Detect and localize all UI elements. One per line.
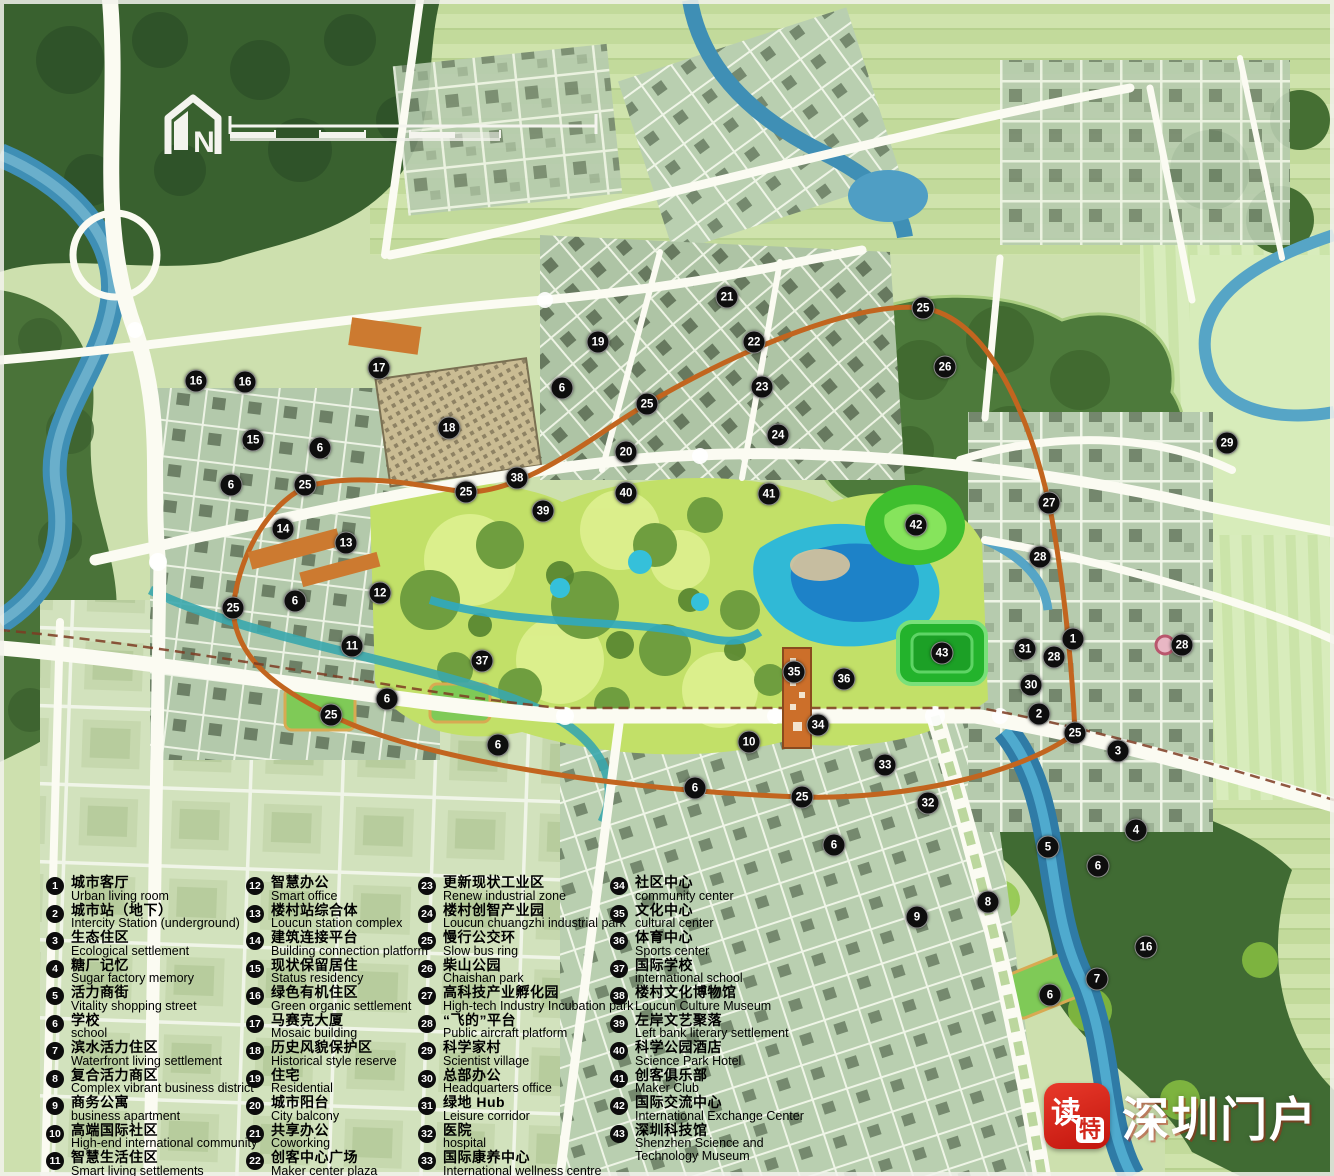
legend-label-en: High-tech Industry Incubation park [443,1000,638,1013]
legend-item-16: 16绿色有机住区Green organic settlement [246,986,426,1013]
map-marker-24: 24 [767,424,790,447]
legend-label-en: Loucun Culture Museum [635,1000,825,1013]
legend-label-en: Vitality shopping street [71,1000,246,1013]
legend-label-cn: 城市站（地下） [71,904,246,918]
legend-item-19: 19住宅Residential [246,1069,426,1096]
legend-number-badge: 29 [418,1042,436,1060]
legend-item-35: 35文化中心cultural center [610,904,825,931]
legend-label-cn: 体育中心 [635,931,825,945]
legend-item-3: 3生态住区Ecological settlement [46,931,246,958]
legend-item-26: 26柴山公园Chaishan park [418,959,638,986]
legend-number-badge: 12 [246,877,264,895]
legend-number-badge: 39 [610,1015,628,1033]
legend-label-en: International Exchange Center [635,1110,825,1123]
legend-label-en: Smart living settlements [71,1165,246,1176]
legend-item-29: 29科学家村Scientist village [418,1041,638,1068]
legend-item-21: 21共享办公Coworking [246,1124,426,1151]
map-marker-16: 16 [185,370,208,393]
legend-item-38: 38楼村文化博物馆Loucun Culture Museum [610,986,825,1013]
map-marker-10: 10 [738,731,761,754]
map-marker-34: 34 [807,714,830,737]
map-marker-25: 25 [455,481,478,504]
map-marker-2: 2 [1028,703,1051,726]
map-marker-25: 25 [293,474,316,497]
map-marker-3: 3 [1107,740,1130,763]
map-marker-42: 42 [905,514,928,537]
legend-label-cn: 共享办公 [271,1124,426,1138]
map-marker-39: 39 [532,500,555,523]
map-marker-25: 25 [636,393,659,416]
legend-item-31: 31绿地 HubLeisure corridor [418,1096,638,1123]
legend-item-22: 22创客中心广场Maker center plaza [246,1151,426,1176]
legend-item-7: 7滨水活力住区Waterfront living settlement [46,1041,246,1068]
legend-number-badge: 7 [46,1042,64,1060]
legend-label-en: community center [635,890,825,903]
legend-label-cn: 总部办公 [443,1069,638,1083]
map-marker-17: 17 [368,357,391,380]
legend-number-badge: 31 [418,1097,436,1115]
map-marker-25: 25 [912,297,935,320]
dute-app-icon: 读 特 [1044,1083,1110,1149]
legend-label-cn: 创客中心广场 [271,1151,426,1165]
legend-item-43: 43深圳科技馆Shenzhen Science andTechnology Mu… [610,1124,825,1164]
legend-item-9: 9商务公寓business apartment [46,1096,246,1123]
legend-label-cn: 智慧生活住区 [71,1151,246,1165]
legend-item-4: 4糖厂记忆Sugar factory memory [46,959,246,986]
map-marker-22: 22 [743,331,766,354]
legend-number-badge: 35 [610,905,628,923]
legend-label-cn: 楼村站综合体 [271,904,426,918]
map-marker-11: 11 [341,635,364,658]
map-marker-5: 5 [1037,836,1060,859]
legend-item-24: 24楼村创智产业园Loucun chuangzhi industrial par… [418,904,638,931]
legend-label-cn: 国际学校 [635,959,825,973]
legend-item-25: 25慢行公交环Slow bus ring [418,931,638,958]
legend-item-23: 23更新现状工业区Renew industrial zone [418,876,638,903]
map-marker-28: 28 [1043,646,1066,669]
legend-number-badge: 9 [46,1097,64,1115]
legend-label-cn: 楼村文化博物馆 [635,986,825,1000]
map-marker-28: 28 [1029,546,1052,569]
legend-label-cn: 文化中心 [635,904,825,918]
legend-item-39: 39左岸文艺聚落Left bank literary settlement [610,1014,825,1041]
legend-number-badge: 15 [246,960,264,978]
legend-item-36: 36体育中心Sports center [610,931,825,958]
legend-number-badge: 40 [610,1042,628,1060]
legend-number-badge: 14 [246,932,264,950]
legend-label-cn: 深圳科技馆 [635,1124,825,1138]
legend-number-badge: 21 [246,1125,264,1143]
legend-item-30: 30总部办公Headquarters office [418,1069,638,1096]
map-marker-38: 38 [506,467,529,490]
legend-label-en-line2: Technology Museum [635,1150,825,1163]
legend-item-17: 17马赛克大厦Mosaic building [246,1014,426,1041]
legend-item-2: 2城市站（地下）Intercity Station (underground) [46,904,246,931]
legend-item-18: 18历史风貌保护区Historical style reserve [246,1041,426,1068]
legend-number-badge: 2 [46,905,64,923]
legend-number-badge: 13 [246,905,264,923]
legend-number-badge: 33 [418,1152,436,1170]
map-marker-30: 30 [1020,674,1043,697]
map-marker-6: 6 [309,437,332,460]
legend-label-cn: 学校 [71,1014,246,1028]
legend-label-en: Historical style reserve [271,1055,426,1068]
legend-label-cn: 绿地 Hub [443,1096,638,1110]
map-marker-28: 28 [1171,634,1194,657]
legend-number-badge: 11 [46,1152,64,1170]
legend-label-en: Ecological settlement [71,945,246,958]
legend-label-cn: 国际康养中心 [443,1151,638,1165]
legend-number-badge: 6 [46,1015,64,1033]
map-marker-1: 1 [1062,628,1085,651]
legend-number-badge: 32 [418,1125,436,1143]
map-marker-13: 13 [335,532,358,555]
map-marker-6: 6 [823,834,846,857]
watermark-char-te: 特 [1076,1117,1104,1143]
legend-label-cn: 高端国际社区 [71,1124,246,1138]
legend-number-badge: 43 [610,1125,628,1143]
map-marker-31: 31 [1013,638,1036,661]
legend-item-32: 32医院hospital [418,1124,638,1151]
legend-number-badge: 28 [418,1015,436,1033]
map-marker-18: 18 [438,417,461,440]
legend-item-8: 8复合活力商区Complex vibrant business district [46,1069,246,1096]
map-marker-25: 25 [320,704,343,727]
map-marker-21: 21 [716,286,739,309]
legend-item-5: 5活力商街Vitality shopping street [46,986,246,1013]
legend-number-badge: 37 [610,960,628,978]
legend-number-badge: 23 [418,877,436,895]
legend-label-cn: 现状保留居住 [271,959,426,973]
legend-number-badge: 34 [610,877,628,895]
legend-label-en: Scientist village [443,1055,638,1068]
legend-item-28: 28“飞的”平台Public aircraft platform [418,1014,638,1041]
legend-label-cn: 创客俱乐部 [635,1069,825,1083]
legend-item-40: 40科学公园酒店Science Park Hotel [610,1041,825,1068]
map-marker-6: 6 [487,734,510,757]
legend-label-cn: 智慧办公 [271,876,426,890]
legend-label-cn: 建筑连接平台 [271,931,426,945]
legend-number-badge: 1 [46,877,64,895]
map-marker-6: 6 [684,777,707,800]
legend-label-cn: 生态住区 [71,931,246,945]
map-marker-29: 29 [1216,432,1239,455]
legend-label-en: Urban living room [71,890,246,903]
legend-label-en: Renew industrial zone [443,890,638,903]
legend-label-en: Green organic settlement [271,1000,426,1013]
map-marker-27: 27 [1038,492,1061,515]
map-marker-6: 6 [220,474,243,497]
legend-item-10: 10高端国际社区High-end international community [46,1124,246,1151]
map-marker-4: 4 [1125,819,1148,842]
legend-column-3: 23更新现状工业区Renew industrial zone24楼村创智产业园L… [418,876,638,1176]
legend-label-cn: 商务公寓 [71,1096,246,1110]
legend-item-34: 34社区中心community center [610,876,825,903]
legend-label-cn: 楼村创智产业园 [443,904,638,918]
legend-number-badge: 41 [610,1070,628,1088]
legend-label-cn: “飞的”平台 [443,1014,638,1028]
legend-label-en: Building connection platform [271,945,426,958]
legend-number-badge: 42 [610,1097,628,1115]
legend-item-37: 37国际学校international school [610,959,825,986]
map-marker-14: 14 [272,518,295,541]
legend-label-en: City balcony [271,1110,426,1123]
legend-number-badge: 5 [46,987,64,1005]
map-marker-6: 6 [284,590,307,613]
legend-label-cn: 城市阳台 [271,1096,426,1110]
map-marker-25: 25 [1064,722,1087,745]
legend-number-badge: 20 [246,1097,264,1115]
legend-label-cn: 科学家村 [443,1041,638,1055]
legend-number-badge: 3 [46,932,64,950]
legend-number-badge: 24 [418,905,436,923]
legend-number-badge: 19 [246,1070,264,1088]
legend-number-badge: 8 [46,1070,64,1088]
legend-label-cn: 历史风貌保护区 [271,1041,426,1055]
map-marker-15: 15 [242,429,265,452]
legend-label-en: Leisure corridor [443,1110,638,1123]
map-marker-23: 23 [751,376,774,399]
watermark-site-name: 深圳门户 [1122,1081,1318,1150]
legend-label-cn: 柴山公园 [443,959,638,973]
legend-label-cn: 科学公园酒店 [635,1041,825,1055]
legend-label-cn: 慢行公交环 [443,931,638,945]
map-marker-33: 33 [874,754,897,777]
legend-label-en: Maker center plaza [271,1165,426,1176]
legend-number-badge: 30 [418,1070,436,1088]
legend-label-en: Waterfront living settlement [71,1055,246,1068]
map-marker-40: 40 [615,482,638,505]
legend-label-cn: 国际交流中心 [635,1096,825,1110]
legend-item-11: 11智慧生活住区Smart living settlements [46,1151,246,1176]
legend-number-badge: 16 [246,987,264,1005]
legend-item-41: 41创客俱乐部Maker Club [610,1069,825,1096]
legend-column-2: 12智慧办公Smart office13楼村站综合体Loucun station… [246,876,426,1176]
legend-label-cn: 左岸文艺聚落 [635,1014,825,1028]
legend-label-en: Slow bus ring [443,945,638,958]
legend-label-cn: 活力商街 [71,986,246,1000]
map-marker-36: 36 [833,668,856,691]
legend-label-cn: 糖厂记忆 [71,959,246,973]
legend-label-cn: 医院 [443,1124,638,1138]
legend-label-en: business apartment [71,1110,246,1123]
legend-label-cn: 马赛克大厦 [271,1014,426,1028]
map-marker-16: 16 [233,371,256,394]
legend-column-4: 34社区中心community center35文化中心cultural cen… [610,876,825,1164]
legend-label-en: International wellness centre [443,1165,638,1176]
legend-label-cn: 绿色有机住区 [271,986,426,1000]
legend-label-cn: 滨水活力住区 [71,1041,246,1055]
legend-number-badge: 25 [418,932,436,950]
legend-number-badge: 36 [610,932,628,950]
map-marker-6: 6 [376,688,399,711]
legend-item-14: 14建筑连接平台Building connection platform [246,931,426,958]
legend-item-12: 12智慧办公Smart office [246,876,426,903]
map-marker-19: 19 [587,331,610,354]
map-marker-25: 25 [222,597,245,620]
watermark: 读 特 深圳门户 [1044,1081,1318,1150]
legend-number-badge: 38 [610,987,628,1005]
map-marker-26: 26 [933,356,956,379]
legend-label-cn: 住宅 [271,1069,426,1083]
legend-label-cn: 城市客厅 [71,876,246,890]
legend-column-1: 1城市客厅Urban living room2城市站（地下）Intercity … [46,876,246,1176]
legend-label-en: Sports center [635,945,825,958]
legend-label-en: Science Park Hotel [635,1055,825,1068]
legend-number-badge: 18 [246,1042,264,1060]
legend-item-1: 1城市客厅Urban living room [46,876,246,903]
map-marker-20: 20 [615,441,638,464]
legend-item-13: 13楼村站综合体Loucun station complex [246,904,426,931]
legend-item-42: 42国际交流中心International Exchange Center [610,1096,825,1123]
legend-item-27: 27高科技产业孵化园High-tech Industry Incubation … [418,986,638,1013]
map-marker-6: 6 [551,377,574,400]
legend-label-cn: 复合活力商区 [71,1069,246,1083]
map-marker-32: 32 [917,792,940,815]
legend-item-20: 20城市阳台City balcony [246,1096,426,1123]
map-marker-25: 25 [791,786,814,809]
legend-number-badge: 26 [418,960,436,978]
legend-number-badge: 4 [46,960,64,978]
legend-number-badge: 22 [246,1152,264,1170]
masterplan-screenshot: N 16161718156625141312625113762561921222… [0,0,1334,1176]
legend-number-badge: 17 [246,1015,264,1033]
legend-item-6: 6学校school [46,1014,246,1041]
legend-label-cn: 高科技产业孵化园 [443,986,638,1000]
map-marker-37: 37 [471,650,494,673]
map-marker-43: 43 [931,642,954,665]
map-marker-41: 41 [758,483,781,506]
map-marker-12: 12 [369,582,392,605]
legend-number-badge: 27 [418,987,436,1005]
legend-item-33: 33国际康养中心International wellness centre [418,1151,638,1176]
legend-label-cn: 社区中心 [635,876,825,890]
legend-label-cn: 更新现状工业区 [443,876,638,890]
legend-item-15: 15现状保留居住Status residency [246,959,426,986]
legend-label-en: Smart office [271,890,426,903]
map-marker-35: 35 [783,661,806,684]
legend-number-badge: 10 [46,1125,64,1143]
